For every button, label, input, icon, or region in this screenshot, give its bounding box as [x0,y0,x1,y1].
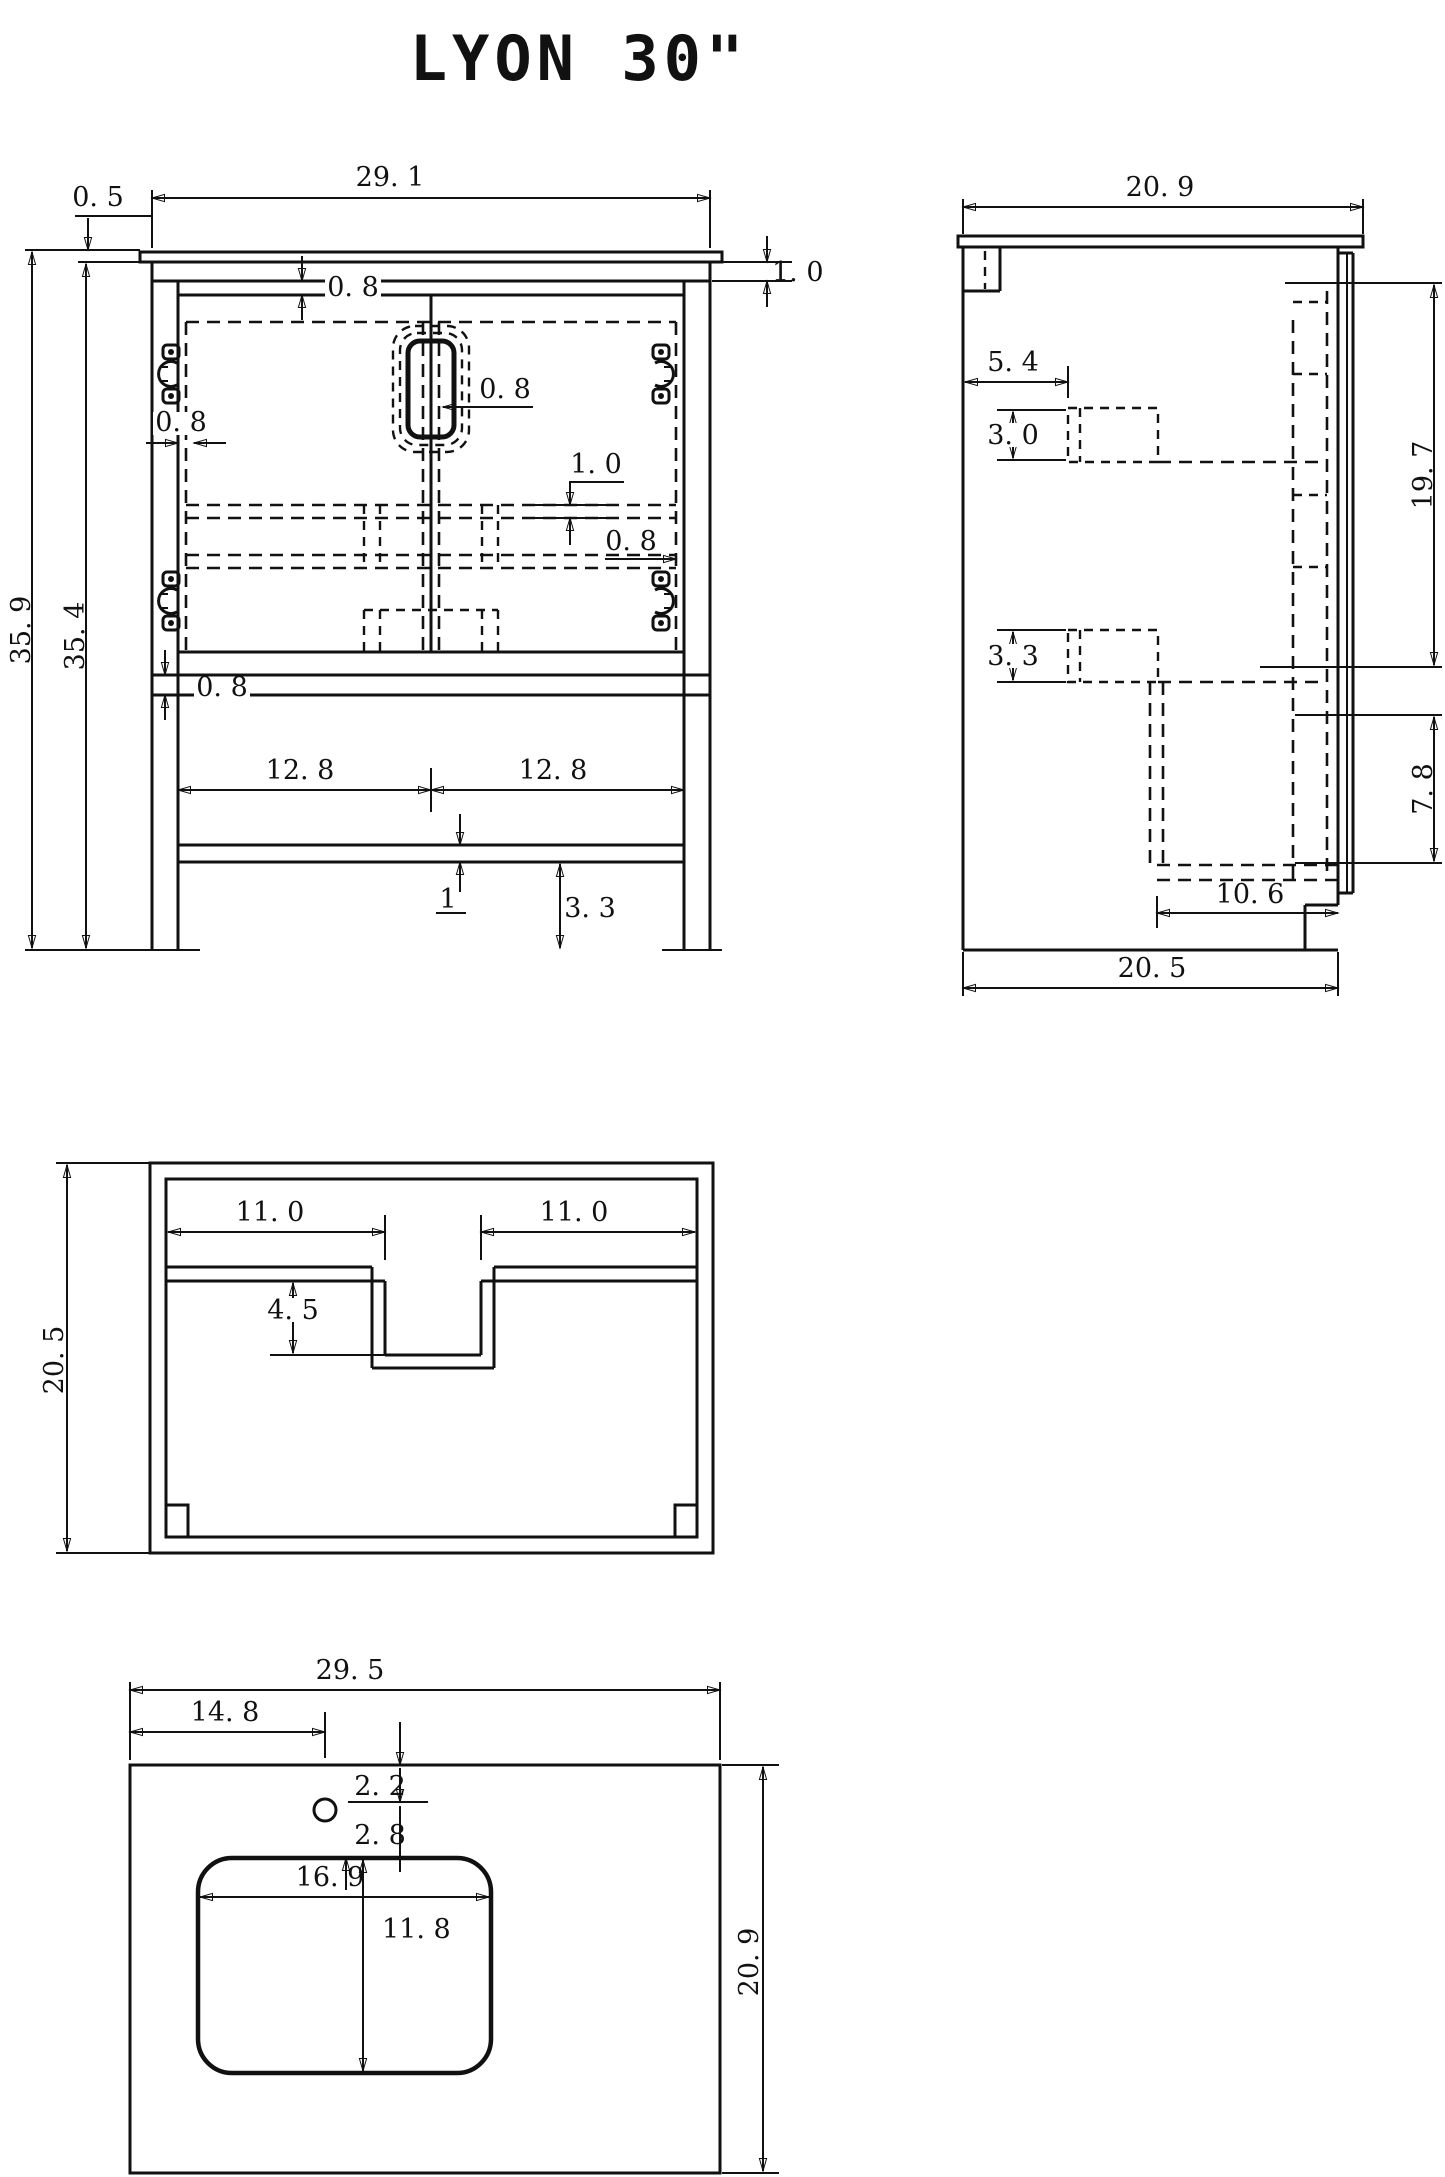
dim-front-gap-left: 0. 8 [146,407,226,443]
dim-front-counter-thickness: 1. 0 [712,236,824,307]
dim-side-door-height: 19. 7 [1260,283,1442,667]
dim-side-depth-top: 20. 9 [963,172,1363,234]
countertop-dimensions: 29. 5 14. 8 2. 2 2. 8 16. 9 11. 8 [130,1655,779,2173]
dim-front-door-widths: 12. 8 12. 8 [178,755,684,812]
dim-side-depth-body: 20. 5 [963,952,1338,996]
dim-label-front-gap-left: 0. 8 [155,407,207,438]
dim-front-foot-height: 3. 3 [560,864,616,948]
dim-counter-sink-width: 16. 9 [200,1862,489,1897]
dim-label-side-depth-body: 20. 5 [1118,953,1187,984]
countertop-view [130,1765,720,2173]
dim-label-counter-width: 29. 5 [316,1655,385,1686]
dim-label-plan-left-width: 11. 0 [236,1197,305,1228]
dim-label-side-rail-upper: 3. 0 [987,420,1039,451]
dim-label-counter-faucet-front: 2. 2 [354,1771,406,1802]
dim-counter-depth: 20. 9 [722,1765,779,2173]
dim-label-counter-sink-depth: 11. 8 [382,1914,451,1945]
dim-front-height-total: 35. 9 [6,250,140,948]
dim-front-gap-top: 0. 8 [302,256,381,320]
dim-front-shelf-thickness: 1 [436,814,466,915]
dim-label-counter-sink-width: 16. 9 [296,1862,365,1893]
dim-front-gap-right-lower: 0. 8 [605,526,676,559]
dim-label-front-counter-thickness: 1. 0 [772,257,824,288]
dim-label-front-shelf-thickness: 1 [439,884,456,915]
dim-label-side-shelf-depth: 10. 6 [1216,879,1285,910]
dim-side-back-inset: 5. 4 [965,347,1068,398]
dim-front-overhang: 0. 5 [72,182,152,250]
dim-label-front-gap-top: 0. 8 [327,272,379,303]
dim-label-front-overhang: 0. 5 [72,182,124,213]
dim-side-open-height: 7. 8 [1295,715,1442,863]
dim-label-front-rail-thickness: 1. 0 [570,449,622,480]
dim-label-side-open-height: 7. 8 [1408,763,1439,815]
dim-label-plan-depth: 20. 5 [39,1326,70,1395]
dim-counter-sink-depth: 11. 8 [363,1860,451,2071]
dim-plan-depth: 20. 5 [39,1163,150,1553]
dim-side-rail-lower: 3. 3 [986,630,1066,682]
dim-front-height-body: 35. 4 [60,262,140,948]
dim-label-front-gap-bottom: 0. 8 [196,672,248,703]
dim-label-front-height-total: 35. 9 [6,596,37,665]
dim-label-front-door-left: 12. 8 [266,755,335,786]
dim-side-rail-upper: 3. 0 [986,410,1066,460]
plan-dimensions: 20. 5 11. 0 11. 0 4. 5 [39,1163,695,1553]
dim-label-side-back-inset: 5. 4 [987,347,1039,378]
dim-label-front-height-body: 35. 4 [60,602,91,671]
page-title: LYON 30" [410,22,749,95]
dim-label-front-foot-height: 3. 3 [564,893,616,924]
technical-drawing: LYON 30" [0,0,1445,2177]
plan-view [150,1163,713,1553]
dim-label-front-width: 29. 1 [356,162,425,193]
dim-plan-notch-depth: 4. 5 [266,1283,385,1355]
drawing-sheet: LYON 30" [0,0,1445,2177]
side-dimensions: 20. 9 5. 4 3. 0 3. 3 19. [963,172,1442,996]
dim-plan-left-width: 11. 0 [168,1197,385,1260]
dim-counter-faucet-x: 14. 8 [130,1697,325,1758]
dim-label-plan-right-width: 11. 0 [540,1197,609,1228]
front-view [25,252,722,950]
dim-label-plan-notch-depth: 4. 5 [267,1295,319,1326]
dim-label-counter-depth: 20. 9 [734,1928,765,1997]
dim-label-counter-faucet-back: 2. 8 [354,1820,406,1851]
dim-label-counter-faucet-x: 14. 8 [191,1697,260,1728]
dim-label-front-door-right: 12. 8 [519,755,588,786]
dim-label-side-rail-lower: 3. 3 [987,641,1039,672]
dim-front-width: 29. 1 [152,162,710,248]
dim-label-front-gap-right-upper: 0. 8 [479,374,531,405]
dim-label-front-gap-right-lower: 0. 8 [605,526,657,557]
dim-label-side-door-height: 19. 7 [1408,441,1439,510]
dim-label-side-depth-top: 20. 9 [1126,172,1195,203]
dim-plan-right-width: 11. 0 [481,1197,695,1260]
faucet-hole [314,1799,336,1821]
